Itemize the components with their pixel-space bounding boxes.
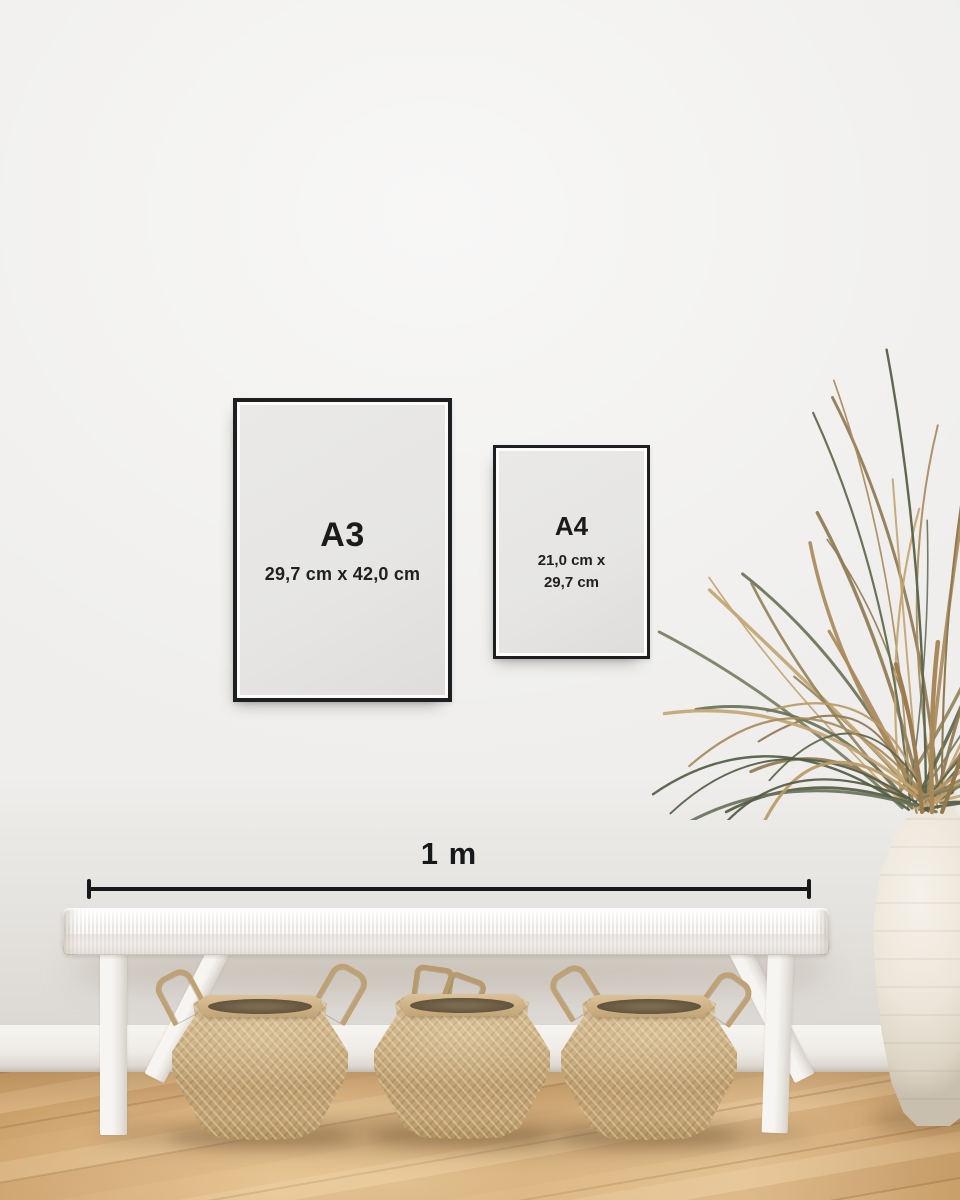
basket-opening — [597, 999, 701, 1014]
poster-size-label-a4: A4 — [555, 511, 588, 542]
basket-body — [172, 998, 348, 1140]
poster-dimensions-a4: 21,0 cm x 29,7 cm — [538, 550, 606, 594]
bench-front-rail — [64, 934, 828, 954]
room-scene: A3 29,7 cm x 42,0 cm A4 21,0 cm x 29,7 c… — [0, 0, 960, 1200]
basket-body — [561, 998, 737, 1140]
poster-paper-a3: A3 29,7 cm x 42,0 cm — [240, 405, 445, 695]
ruler-tick-left — [87, 879, 91, 899]
basket-body — [374, 997, 550, 1139]
poster-dimensions-a3: 29,7 cm x 42,0 cm — [265, 564, 421, 585]
measurement-label: 1 m — [88, 836, 810, 872]
bench-leg-front-left — [100, 950, 127, 1135]
seagrass-basket-left — [172, 998, 348, 1140]
basket-opening — [410, 998, 514, 1013]
dried-palm-plant — [600, 320, 960, 820]
poster-dimensions-a4-line1: 21,0 cm x — [538, 550, 606, 572]
poster-frame-a3: A3 29,7 cm x 42,0 cm — [233, 398, 452, 702]
seagrass-basket-middle — [374, 997, 550, 1139]
measurement-ruler — [88, 887, 810, 891]
poster-dimensions-a4-line2: 29,7 cm — [538, 572, 606, 594]
ruler-tick-right — [807, 879, 811, 899]
seagrass-basket-right — [561, 998, 737, 1140]
basket-opening — [208, 999, 312, 1014]
poster-size-label-a3: A3 — [320, 516, 364, 555]
